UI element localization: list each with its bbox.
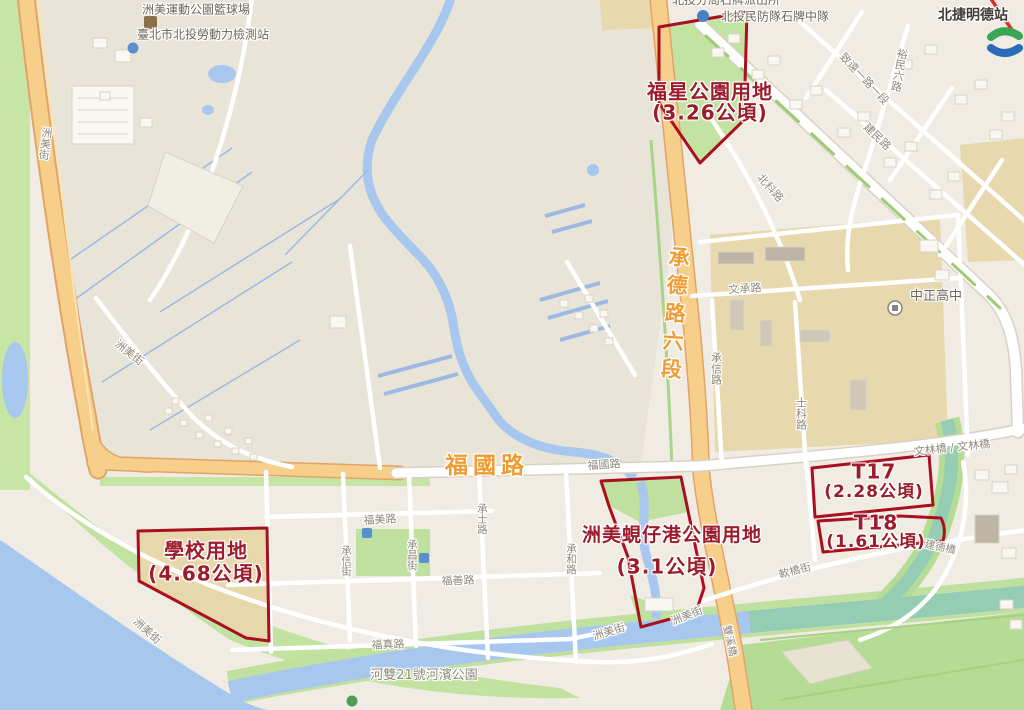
- mrt-station-label: 北捷明德站: [938, 9, 1008, 24]
- shellport-parcel-name: 洲美蜆仔港公園用地: [582, 526, 762, 546]
- chengxin-road-label: 承信路: [710, 352, 722, 385]
- map-base-layer: [0, 0, 1024, 710]
- fuguo-road-small-label: 福國路: [587, 458, 621, 472]
- chengchang-street-label: 承昌街: [406, 539, 417, 571]
- chengxin-street-label: 承信街: [340, 545, 351, 577]
- fumei-road-label: 福美路: [363, 513, 397, 526]
- labor-station-label: 臺北市北投勞動力檢測站: [137, 29, 269, 42]
- basketball-court-label: 洲美運動公園籃球場: [142, 4, 250, 17]
- t17-parcel-name: T17: [852, 462, 896, 483]
- chengshi-street-label: 承士路: [476, 503, 487, 535]
- shike-road-label: 士科路: [795, 397, 807, 430]
- fushan-road-label: 福善路: [441, 575, 474, 588]
- bus-stop-icon: [419, 553, 429, 563]
- civil-defense-label: 北投民防隊石牌中隊: [721, 11, 829, 24]
- highschool-label: 中正高中: [910, 290, 962, 304]
- fuzhen-road-label: 福真路: [371, 639, 404, 652]
- map-canvas[interactable]: 洲美運動公園籃球場 臺北市北投勞動力檢測站 北投分局石牌派出所 北投民防隊石牌中…: [0, 0, 1024, 710]
- fuguo-road-label: 福國路: [445, 454, 529, 478]
- t18-parcel-area: (1.61公頃): [826, 534, 925, 552]
- zhoumei-street-label-hwy: 洲美街: [37, 126, 52, 160]
- t17-parcel-area: (2.28公頃): [824, 484, 923, 502]
- fuxing-parcel-area: (3.26公頃): [652, 103, 768, 124]
- civil-defense-icon: [697, 10, 709, 22]
- school-parcel-name: 學校用地: [164, 541, 248, 562]
- t18-parcel-name: T18: [854, 513, 898, 534]
- land-west-district: [30, 0, 672, 470]
- shellport-parcel-area: (3.1公頃): [617, 557, 718, 578]
- poi-dot-icon: [128, 43, 139, 54]
- fuxing-parcel-name: 福星公園用地: [647, 82, 773, 103]
- bus-stop-icon-2: [362, 528, 372, 538]
- school-parcel-area: (4.68公頃): [148, 564, 264, 585]
- riverside-park-label: 河雙21號河濱公園: [370, 669, 478, 683]
- chenghe-road-label: 承和路: [565, 543, 576, 575]
- tree-icon: [347, 696, 358, 707]
- police-station-label: 北投分局石牌派出所: [672, 0, 780, 7]
- wencheng-road-label: 文承路: [728, 282, 762, 296]
